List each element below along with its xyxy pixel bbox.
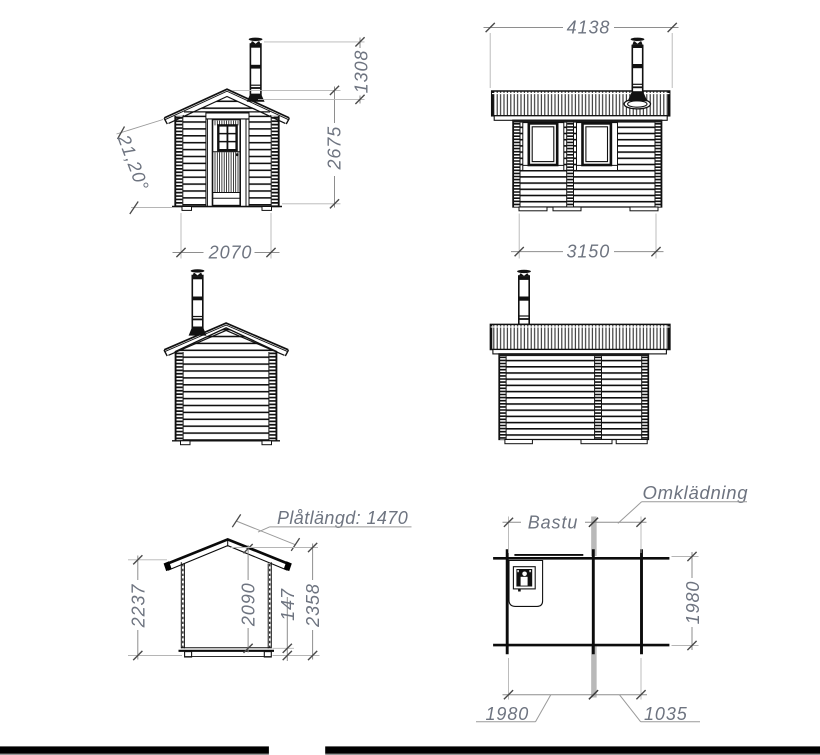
svg-text:1308: 1308 xyxy=(352,50,372,94)
svg-text:147: 147 xyxy=(278,588,298,621)
svg-text:2675: 2675 xyxy=(324,126,344,171)
svg-text:1035: 1035 xyxy=(644,704,688,724)
svg-text:3150: 3150 xyxy=(566,242,610,262)
svg-text:Bastu: Bastu xyxy=(528,513,579,533)
svg-text:21,20°: 21,20° xyxy=(113,131,152,194)
svg-text:Omklädning: Omklädning xyxy=(643,482,749,503)
svg-text:4138: 4138 xyxy=(567,17,611,37)
svg-text:2237: 2237 xyxy=(128,584,148,629)
svg-text:2358: 2358 xyxy=(303,583,323,628)
svg-text:1980: 1980 xyxy=(486,704,530,724)
svg-text:Plåtlängd: 1470: Plåtlängd: 1470 xyxy=(277,508,408,528)
svg-text:2090: 2090 xyxy=(239,582,259,627)
svg-text:2070: 2070 xyxy=(208,242,253,262)
svg-text:1980: 1980 xyxy=(683,581,703,625)
